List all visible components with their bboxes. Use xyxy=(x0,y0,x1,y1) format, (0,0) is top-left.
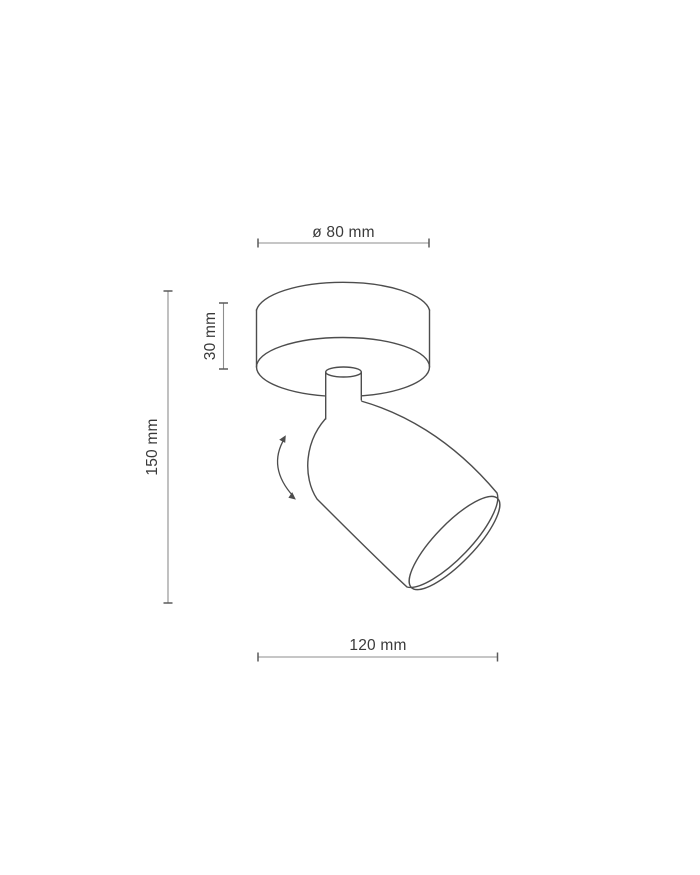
overall-height-dimension-label: 150 mm xyxy=(144,418,161,475)
diameter-dimension-label: ø 80 mm xyxy=(312,224,375,241)
swivel-arrow-icon xyxy=(278,435,296,499)
product-dimension-diagram: ø 80 mm 150 mm 30 mm 120 mm xyxy=(0,0,700,875)
stem-top-ellipse xyxy=(326,367,362,377)
spot-head xyxy=(308,401,512,601)
diagram-canvas: ø 80 mm 150 mm 30 mm 120 mm xyxy=(0,0,700,875)
swivel-arrow-head-bottom xyxy=(288,492,296,500)
spot-head-body xyxy=(308,401,498,587)
canopy-height-dimension-label: 30 mm xyxy=(202,312,219,360)
overall-length-dimension-label: 120 mm xyxy=(349,637,406,654)
stem xyxy=(326,367,362,427)
stem-mask xyxy=(326,372,362,427)
fixture-drawing xyxy=(257,282,512,601)
canopy-top-arc xyxy=(257,282,430,310)
swivel-arrow-curve xyxy=(278,439,294,497)
